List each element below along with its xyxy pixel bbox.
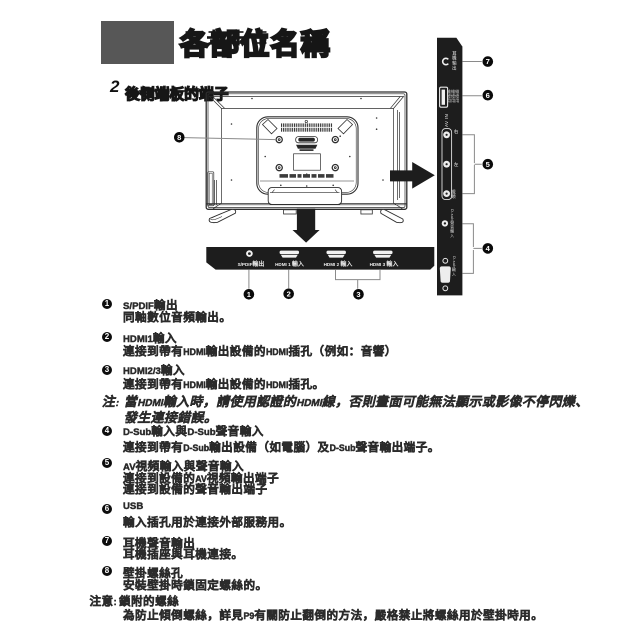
svg-text:右: 右 <box>454 128 459 135</box>
svg-text:HDMI 3 輸入: HDMI 3 輸入 <box>370 260 399 268</box>
svg-text:左: 左 <box>454 161 459 167</box>
svg-text:8: 8 <box>177 133 181 142</box>
svg-text:AV IN: AV IN <box>444 114 449 127</box>
svg-text:HDMI 1 輸入: HDMI 1 輸入 <box>275 260 304 268</box>
svg-text:D-sub聲音輸入: D-sub聲音輸入 <box>450 209 455 237</box>
svg-text:3: 3 <box>356 290 360 299</box>
svg-text:S/PDIF輸出: S/PDIF輸出 <box>238 260 265 268</box>
svg-text:2: 2 <box>287 289 291 298</box>
svg-text:HDMI 2 輸入: HDMI 2 輸入 <box>324 260 353 268</box>
svg-text:視頻: 視頻 <box>451 189 457 201</box>
svg-text:D-sub輸入: D-sub輸入 <box>452 256 457 276</box>
